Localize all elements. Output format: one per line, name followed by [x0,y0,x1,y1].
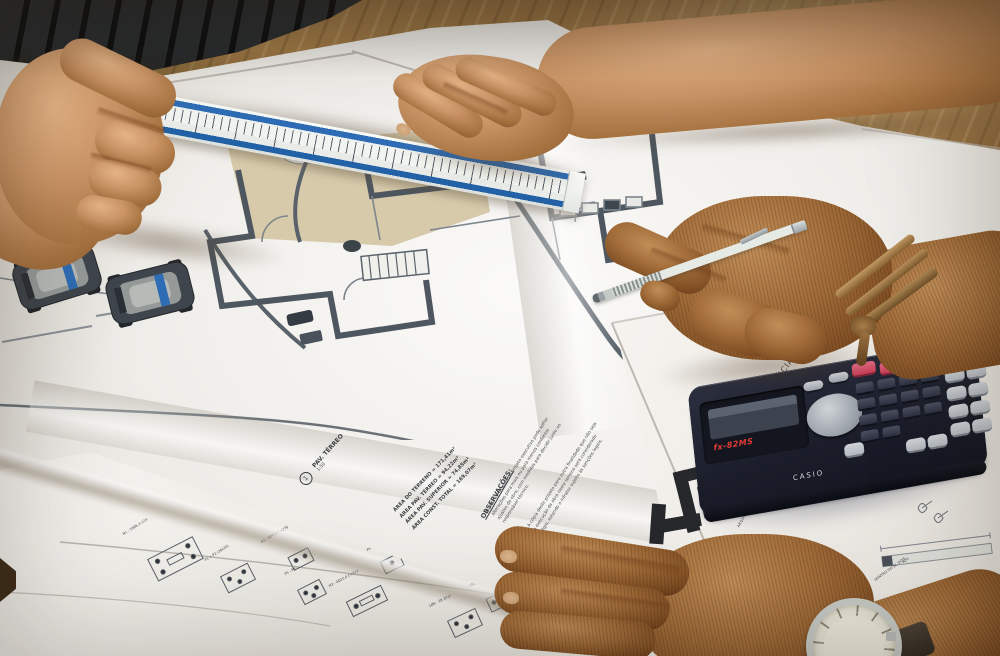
calculator-key [902,405,921,420]
calculator-key [882,425,901,440]
calculator-key-gray [844,441,865,458]
calculator-screen-bezel: fx-82MS [699,385,810,465]
dark-furniture-oval [343,240,361,252]
calculator-key-gray [950,421,971,438]
calculator-key [855,381,874,396]
detail-box [346,585,387,616]
calculator-key [880,409,899,424]
detail-box [221,563,256,593]
calculator-key [924,401,943,416]
calculator-key [857,397,876,412]
calculator-key [859,413,878,428]
calculator-key [900,389,919,404]
calculator-key-gray [905,437,926,454]
calculator-key-gray [946,385,967,402]
calculator-key [860,429,879,444]
calculator-screen [708,394,800,440]
detail-box [298,579,327,604]
calculator-brand-text: CASIO [793,469,825,482]
detail-box [148,537,203,581]
car-top-view-2 [103,258,197,330]
calculator-key-gray [948,403,969,420]
calculator-model-text: fx-82MS [713,437,754,453]
calculator-key [877,377,896,392]
photo-blueprint-desk-scene: DENTRO DO BL DOIS AÇO ÁREA DO TERRENO = … [0,0,1000,656]
watch-crown [886,632,896,641]
calculator-key [922,385,941,400]
calculator-key-gray [927,433,948,450]
hatched-area [361,250,429,281]
calculator-key [879,393,898,408]
calculator-navpad [805,389,865,441]
